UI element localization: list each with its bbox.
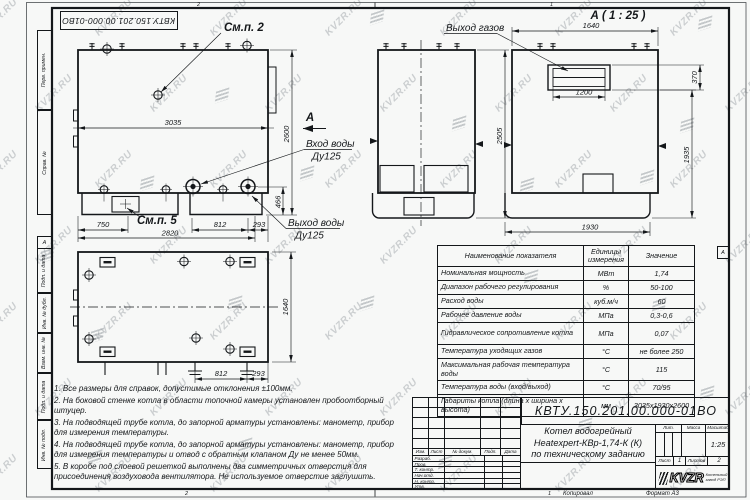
scale-label: Масштаб [706,425,730,433]
footer-format: Формат А3 [646,491,679,497]
lit-mass-scale-header: Лит. Масса Масштаб [656,425,730,433]
footer-copied-by: Копировал [563,491,593,497]
dim-1200: 1200 [576,88,594,97]
revision-reserve-cell [481,439,501,449]
product-name-line3: по техническому заданию [531,449,645,461]
revision-reserve-cell [413,439,429,449]
signature-role-label: Утв. [413,484,445,490]
spec-cell-unit: МПа [584,323,629,345]
revision-reserve-row [413,408,521,418]
spec-cell-unit: куб.м/ч [584,295,629,309]
frame-field-label: Инв. № подл. [42,428,48,460]
revision-col-header: Лист [429,449,445,456]
revision-reserve-cell [501,408,521,418]
water-outlet-dn: Ду125 [294,231,324,242]
frame-field-label: Подп. и дата [42,254,48,286]
dim-370: 370 [690,70,699,83]
revision-reserve-cell [445,408,481,418]
spec-cell-value: 0,07 [629,323,695,345]
revision-reserve-cell [413,418,429,428]
spec-cell-value: не более 250 [629,345,695,359]
revision-reserve-cell [481,429,501,439]
sheets-total-label: Листов [686,457,708,465]
spec-header-row: Наименование показателя Единицы измерени… [438,246,695,267]
revision-reserve-cell [501,429,521,439]
frame-field-sprav-no: Справ. № [37,110,52,215]
dim-750: 750 [97,220,110,229]
lit-label: Лит. [656,425,682,433]
frame-field-podp-data-2: Подп. и дата [37,373,52,420]
note-item: 5. В коробе под слоевой решеткой выполне… [54,462,406,483]
frame-field-label: Перв. примен. [42,53,48,87]
dim-812-top-view: 812 [215,369,228,378]
spec-cell-unit: МПа [584,309,629,323]
spec-cell-value: 1,74 [629,267,695,281]
mass-label: Масса [682,425,706,433]
spec-row: Расход водыкуб.м/ч60 [438,295,695,309]
company-logo-cell: KVZR Котельный завод РЭП [656,466,730,490]
a-view: А ( 1 : 25 ) 1640 Выход газов 1200 370 [444,10,704,236]
sheet-count-row: Лист 1 Листов 2 [656,456,730,466]
spec-row: Гидравлическое сопротивление котлаМПа0,0… [438,323,695,345]
revision-reserve-cell [445,418,481,428]
callout-smp2: См.п. 2 [224,22,264,34]
revision-reserve-row [413,418,521,428]
signature-empty-cell [485,484,503,490]
note-item: 4. На подводящей трубе котла, до запорно… [54,440,406,461]
signature-row: Утв. [413,484,521,490]
revision-reserve-cell [429,429,445,439]
zone-letter: А [43,240,47,246]
view-arrow-label: А [305,112,314,124]
frame-field-label: Взам. инв. № [42,337,48,369]
lit-cells [656,433,682,456]
revision-reserve-cell [481,408,501,418]
note-item: 2. На боковой стенке котла в области топ… [54,396,406,417]
revision-reserve-cell [429,398,445,408]
spec-cell-name: Расход воды [438,295,584,309]
note-item: 3. На подводящей трубе котла, до запорно… [54,418,406,439]
spec-row: Номинальная мощностьМВт1,74 [438,267,695,281]
zone-marker-left: А [37,236,52,249]
spec-cell-unit: °С [584,359,629,381]
scale-value: 1:25 [706,433,730,456]
revision-col-header: Подп. [481,449,501,456]
revision-reserve-cell [501,398,521,408]
frame-field-inv-podl: Инв. № подл. [37,420,52,469]
doc-number-stamp: КВТУ.150.201.00.000-01ВО [60,11,178,30]
revision-reserve-cell [501,418,521,428]
dim-1930: 1930 [582,223,600,232]
spec-cell-unit: % [584,281,629,295]
product-name-line2: Heatexpert-КВр-1,74-К (К) [534,438,642,450]
dim-3035: 3035 [165,118,183,127]
dim-2600: 2600 [282,125,291,144]
revision-reserve-row [413,439,521,449]
frame-field-label: Подп. и дата [42,380,48,412]
frame-field-label: Справ. № [42,151,48,175]
spec-row: Диапазон рабочего регулирования%50-100 [438,281,695,295]
signature-empty-cell [445,484,485,490]
spec-cell-name: Рабочее давление воды [438,309,584,323]
revision-reserve-cell [429,408,445,418]
revision-reserve-cell [429,439,445,449]
dim-1935: 1935 [682,146,691,164]
top-view: 1640 812 293 [70,252,296,383]
notes-block: 1. Все размеры для справок, допустимые о… [54,384,406,484]
logo-caption-line2: завод РЭП [706,478,728,483]
revision-reserve-row [413,429,521,439]
signature-empty-cell [503,484,521,490]
spec-cell-name: Температура воды (вход/выход) [438,381,584,395]
revision-reserve-cell [413,398,429,408]
dim-2820: 2820 [161,229,180,238]
doc-number-flipped-text: КВТУ.150.201.00.000-01ВО [62,16,175,26]
spec-cell-value: 60 [629,295,695,309]
title-block-doc-number: КВТУ.150.201.00.000-01ВО [521,398,730,425]
spec-table: Наименование показателя Единицы измерени… [437,245,695,417]
zone-number-top-left: 2 [197,2,200,8]
revision-reserve-cell [445,398,481,408]
spec-cell-unit: °С [584,381,629,395]
revision-reserve-cell [501,439,521,449]
dim-1640-side: 1640 [281,298,290,316]
water-outlet-label: Выход воды [288,218,345,229]
spec-col-name: Наименование показателя [438,246,584,267]
dim-466: 466 [274,195,283,208]
dim-812: 812 [214,220,227,229]
zone-number-bottom-left: 2 [185,491,188,497]
dim-293: 293 [252,220,266,229]
product-name-cell: Котел водогрейный Heatexpert-КВр-1,74-К … [521,425,656,463]
lit-mass-scale-values: 1:25 [656,433,730,456]
revision-reserve-cell [413,429,429,439]
revision-reserve-cell [413,408,429,418]
water-inlet-label: Вход воды [306,139,355,150]
kvzr-logo-text: KVZR [670,471,704,485]
zone-number-top-right: 1 [550,2,553,8]
revision-reserve-cell [445,439,481,449]
spec-row: Температура уходящих газов°Сне более 250 [438,345,695,359]
revision-reserve-cell [445,429,481,439]
revision-col-header: Изм. [413,449,429,456]
dim-1640-top: 1640 [583,21,601,30]
spec-cell-name: Максимальная рабочая температура воды [438,359,584,381]
kvzr-logo-caption: Котельный завод РЭП [706,473,728,483]
spec-row: Максимальная рабочая температура воды°С1… [438,359,695,381]
spec-col-units: Единицы измерения [584,246,629,267]
frame-field-vzam-inv: Взам. инв. № [37,333,52,373]
revision-col-header: № докум. [445,449,481,456]
spec-cell-value: 0,3-0,6 [629,309,695,323]
mass-value-cell [682,433,706,456]
spec-cell-unit: МВт [584,267,629,281]
water-inlet-dn: Ду125 [311,152,341,163]
front-view: См.п. 2 3035 2600 466 [73,22,355,242]
frame-field-podp-data-1: Подп. и дата [37,248,52,293]
side-view: 2505 [370,40,509,226]
spec-row: Рабочее давление водыМПа0,3-0,6 [438,309,695,323]
revision-reserve-table [413,398,521,449]
revision-header-row: Изм.Лист№ докум.Подп.Дата [413,449,521,456]
spec-cell-unit: °С [584,345,629,359]
title-block: Изм.Лист№ докум.Подп.Дата Разраб.Пров.Т.… [412,397,729,489]
gas-outlet-label: Выход газов [446,23,504,34]
sheets-total-value: 2 [708,457,730,465]
revision-col-header: Дата [501,449,521,456]
revision-reserve-cell [481,398,501,408]
sheet-number: 1 [674,457,686,465]
dim-2505: 2505 [495,127,504,146]
revision-reserve-row [413,398,521,408]
frame-field-inv-dubl: Инв. № дубл. [37,293,52,333]
dim-293-top-view: 293 [251,369,265,378]
product-name-line1: Котел водогрейный [544,426,631,438]
title-block-empty-cell [521,463,656,490]
signature-rows: Разраб.Пров.Т. контр.Нач.отд.Н. контр.Ут… [413,456,521,490]
frame-field-label: Инв. № дубл. [42,297,48,329]
kvzr-spring-icon [657,472,669,485]
callout-smp5: См.п. 5 [137,215,177,227]
zone-marker-right: А [717,246,729,259]
drawing-sheet: KVZR.RUKVZR.RUKVZR.RUKVZR.RUKVZR.RUKVZR.… [0,0,750,500]
note-item: 1. Все размеры для справок, допустимые о… [54,384,406,395]
spec-cell-value: 70/95 [629,381,695,395]
sheet-label: Лист [656,457,674,465]
revision-reserve-cell [481,418,501,428]
spec-cell-value: 115 [629,359,695,381]
spec-col-value: Значение [629,246,695,267]
revision-reserve-cell [429,418,445,428]
spec-cell-name: Номинальная мощность [438,267,584,281]
zone-letter: А [721,250,725,256]
frame-field-perv-primen: Перв. примен. [37,30,52,110]
spec-cell-name: Диапазон рабочего регулирования [438,281,584,295]
spec-row: Температура воды (вход/выход)°С70/95 [438,381,695,395]
spec-cell-name: Температура уходящих газов [438,345,584,359]
spec-cell-name: Гидравлическое сопротивление котла [438,323,584,345]
spec-cell-value: 50-100 [629,281,695,295]
zone-number-bottom-right: 1 [548,491,551,497]
